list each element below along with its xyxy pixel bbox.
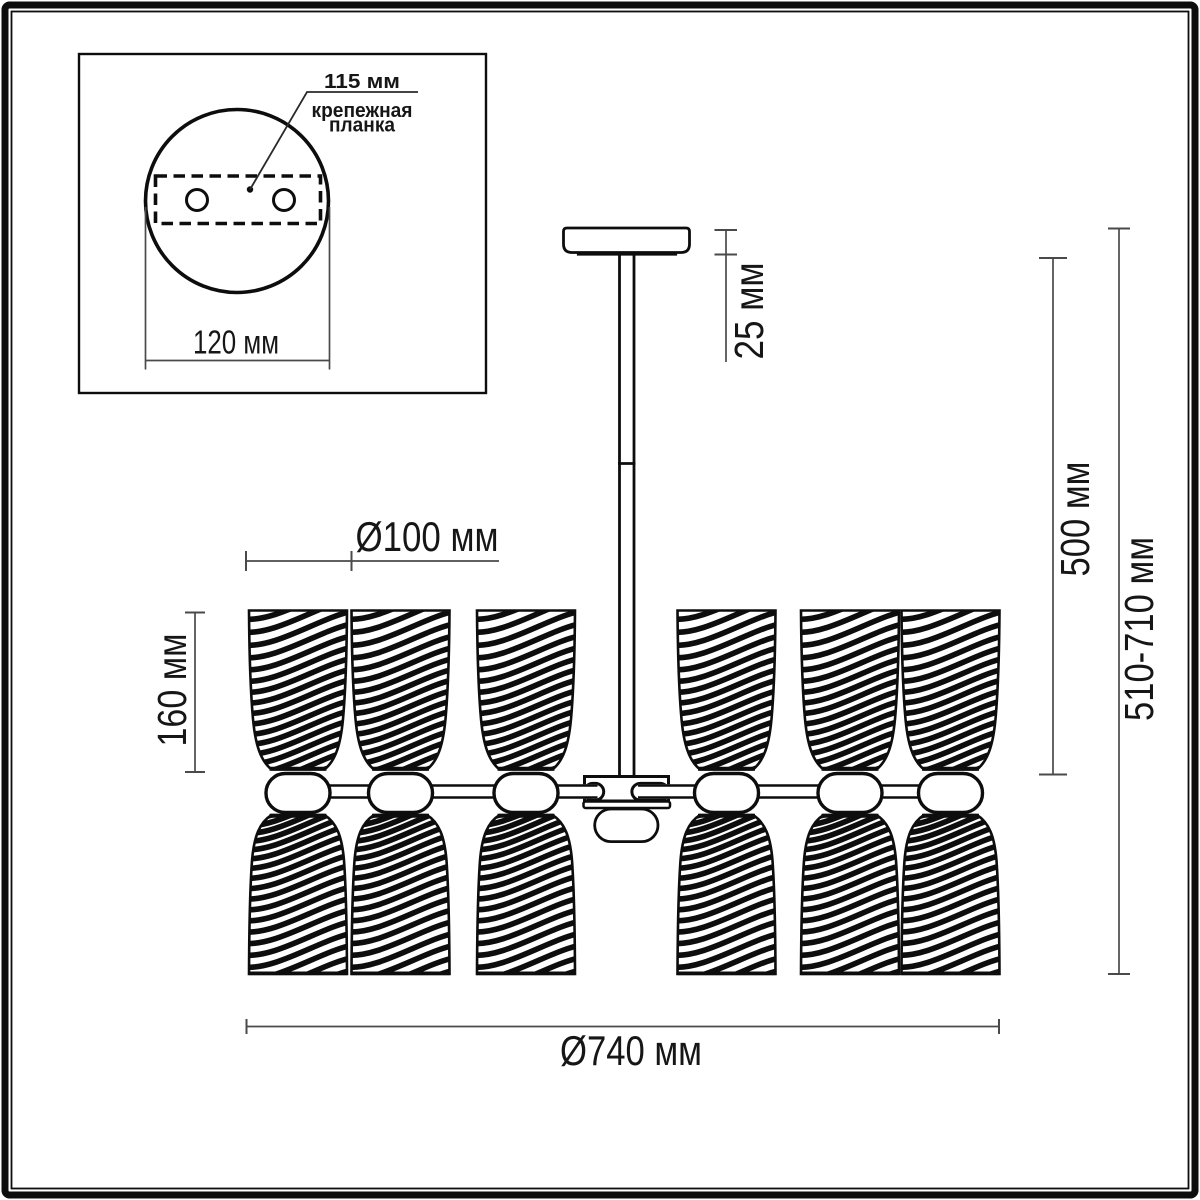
svg-text:500 мм: 500 мм [1052,462,1098,577]
svg-text:Ø740 мм: Ø740 мм [560,1027,702,1074]
svg-text:510-710 мм: 510-710 мм [1116,537,1162,721]
svg-text:115 мм: 115 мм [324,71,400,93]
svg-text:Ø100 мм: Ø100 мм [356,513,499,560]
svg-text:25 мм: 25 мм [726,263,772,360]
svg-text:160 мм: 160 мм [149,634,195,747]
svg-text:планка: планка [329,115,396,137]
svg-text:120 мм: 120 мм [193,324,279,361]
